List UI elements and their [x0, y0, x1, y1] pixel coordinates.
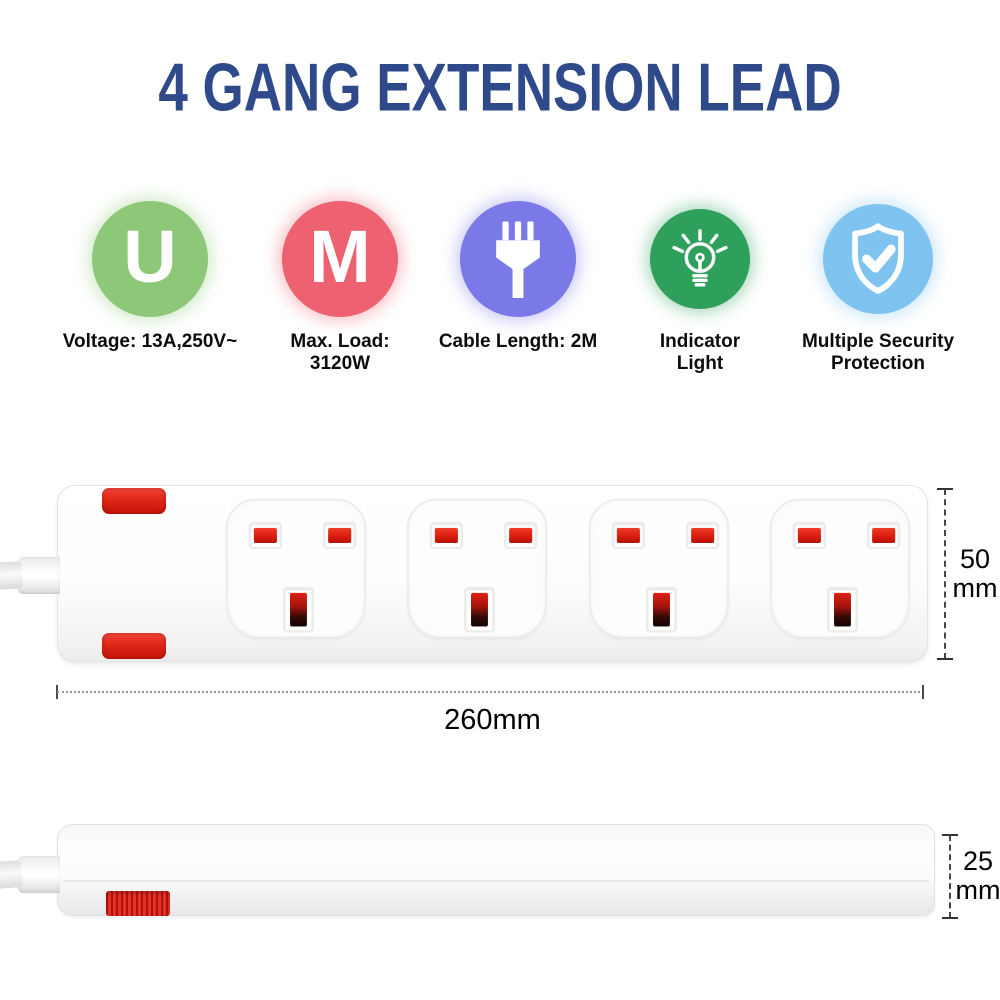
height-dimension-line	[944, 489, 946, 659]
socket-2	[406, 499, 547, 639]
height-dimension-tick-bottom	[937, 658, 953, 660]
cable-strain-relief	[18, 856, 60, 893]
depth-dimension-label: 25 mm	[955, 847, 1000, 905]
power-cable	[0, 561, 23, 589]
letter-u-glyph: U	[123, 220, 176, 294]
feature-item-voltage: U Voltage: 13A,250V~	[40, 195, 260, 385]
voltage-label: Voltage: 13A,250V~	[40, 331, 260, 353]
neutral-slot	[686, 522, 719, 549]
power-strip-top-view	[57, 485, 928, 662]
power-strip-side-view	[57, 824, 935, 916]
light-bulb-icon	[650, 209, 750, 309]
live-slot	[793, 522, 826, 549]
length-dimension-label: 260mm	[0, 704, 985, 737]
live-slot	[249, 522, 282, 549]
depth-dimension-tick-bottom	[942, 917, 958, 919]
height-dimension-label: 50 mm	[950, 545, 1000, 603]
live-slot	[430, 522, 463, 549]
earth-slot	[283, 587, 314, 632]
letter-m-glyph: M	[309, 220, 371, 294]
side-switch	[106, 891, 170, 916]
length-dimension-tick-right	[922, 685, 924, 699]
socket-4	[769, 499, 910, 639]
page-title: 4 GANG EXTENSION LEAD	[35, 49, 965, 127]
cable-strain-relief	[18, 557, 60, 594]
housing-seam	[63, 880, 929, 882]
letter-m-icon: M	[282, 201, 398, 317]
socket-3	[588, 499, 729, 639]
earth-slot	[827, 587, 858, 632]
neutral-slot	[504, 522, 537, 549]
neutral-slot	[867, 522, 900, 549]
shield-check-icon	[823, 204, 933, 314]
plug-icon	[460, 201, 576, 317]
neon-indicator-top	[102, 488, 166, 514]
earth-slot	[646, 587, 677, 632]
neon-indicator-bottom	[102, 633, 166, 659]
length-dimension-line	[57, 691, 924, 693]
power-cable	[0, 860, 23, 889]
depth-dimension-line	[949, 835, 951, 918]
feature-item-security: Multiple Security Protection	[768, 195, 988, 385]
product-spec-image: 4 GANG EXTENSION LEAD U Voltage: 13A,250…	[0, 0, 1000, 1000]
neutral-slot	[323, 522, 356, 549]
live-slot	[612, 522, 645, 549]
letter-u-icon: U	[92, 201, 208, 317]
security-label: Multiple Security Protection	[768, 331, 988, 375]
socket-1	[225, 499, 366, 639]
earth-slot	[464, 587, 495, 632]
